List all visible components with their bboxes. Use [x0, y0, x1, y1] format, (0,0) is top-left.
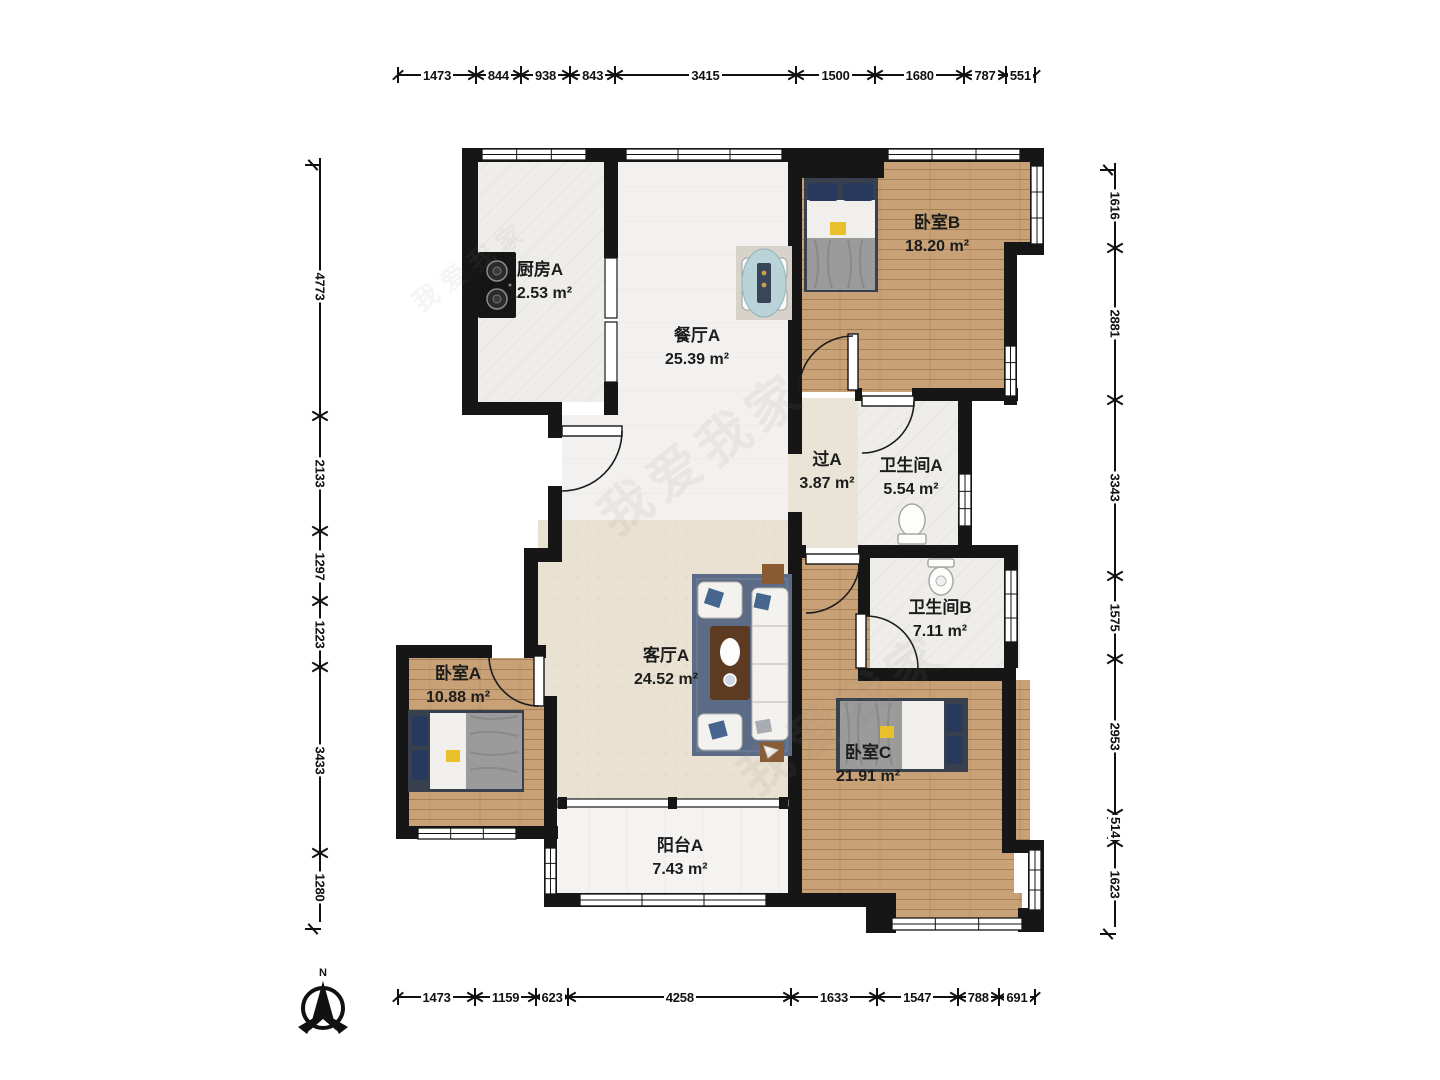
toilet-icon-bath-a [898, 504, 926, 544]
floor-plan: N [0, 0, 1440, 1080]
compass-north-label: N [319, 967, 327, 979]
bed-icon-bedroom-c [836, 698, 968, 772]
stove-icon [478, 252, 516, 318]
sofa-set-icon [692, 564, 792, 762]
dining-table-icon [736, 246, 792, 320]
sliding-door-balcony [557, 797, 789, 809]
north-compass-icon [298, 981, 348, 1034]
bed-icon-bedroom-b [804, 178, 878, 292]
sliding-door-kitchen [605, 258, 617, 382]
bed-icon-bedroom-a [408, 710, 524, 792]
toilet-icon-bath-b [928, 559, 954, 595]
